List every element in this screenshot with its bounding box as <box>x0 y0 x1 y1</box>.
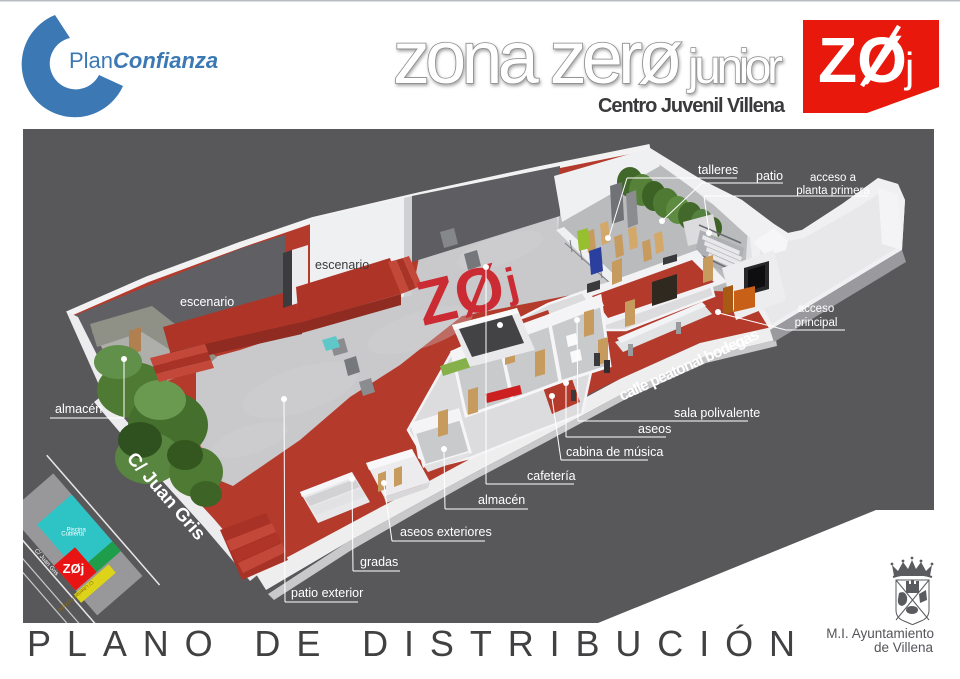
svg-text:aseos exteriores: aseos exteriores <box>400 525 492 539</box>
svg-text:cabina de música: cabina de música <box>566 445 663 459</box>
svg-text:principal: principal <box>795 317 838 329</box>
svg-text:zona zerø: zona zerø <box>393 16 683 99</box>
svg-text:PLANO DE DISTRIBUCIÓN: PLANO DE DISTRIBUCIÓN <box>27 623 795 664</box>
svg-text:escenario: escenario <box>315 258 369 272</box>
svg-text:M.I. Ayuntamiento: M.I. Ayuntamiento <box>826 626 934 641</box>
svg-text:acceso: acceso <box>798 303 834 315</box>
svg-text:Centro Juvenil Villena: Centro Juvenil Villena <box>598 95 786 117</box>
svg-text:de Villena: de Villena <box>874 640 934 655</box>
svg-text:escenario: escenario <box>180 295 234 309</box>
svg-text:patio: patio <box>756 169 783 183</box>
svg-text:j: j <box>903 44 914 91</box>
svg-text:talleres: talleres <box>698 163 738 177</box>
svg-text:planta primera: planta primera <box>796 185 870 197</box>
svg-text:aseos: aseos <box>638 422 671 436</box>
svg-text:Cubierta: Cubierta <box>61 531 84 537</box>
svg-text:sala polivalente: sala polivalente <box>674 406 760 420</box>
svg-text:almacén: almacén <box>55 402 102 416</box>
svg-text:junior: junior <box>686 41 783 94</box>
svg-text:cafetería: cafetería <box>527 469 576 483</box>
svg-text:gradas: gradas <box>360 555 398 569</box>
svg-text:acceso a: acceso a <box>810 172 857 184</box>
svg-text:ZØj: ZØj <box>63 561 85 576</box>
svg-text:PlanConfianza: PlanConfianza <box>69 48 218 73</box>
svg-text:almacén: almacén <box>478 493 525 507</box>
svg-text:patio exterior: patio exterior <box>291 586 363 600</box>
